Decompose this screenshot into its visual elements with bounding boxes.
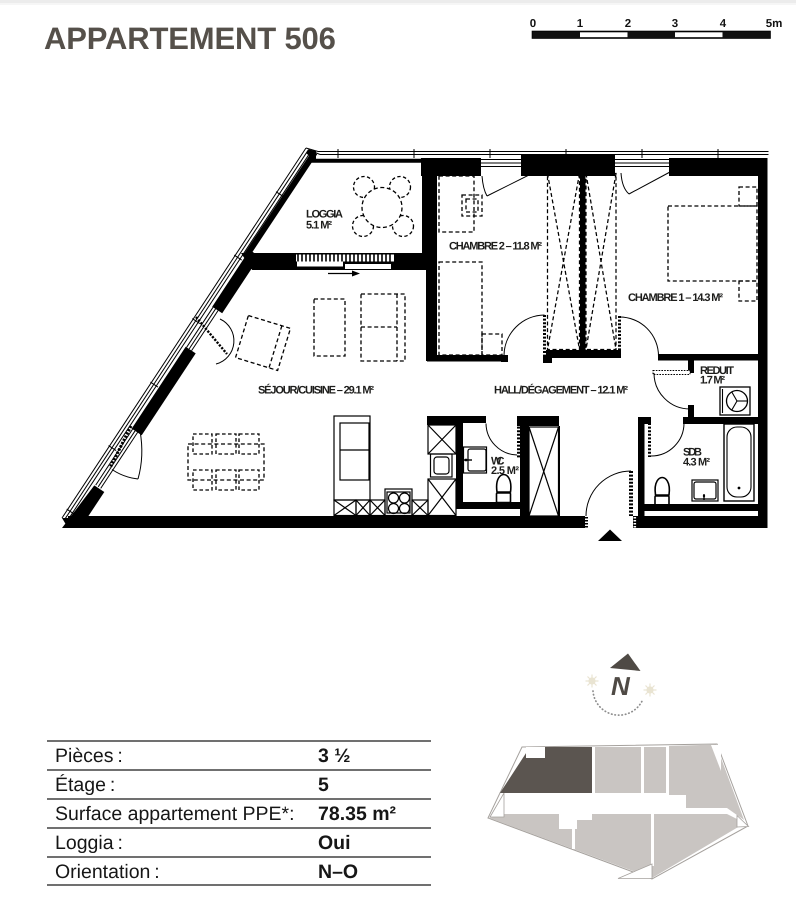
- svg-text:N: N: [611, 671, 631, 701]
- svg-text:4.3 M²: 4.3 M²: [683, 457, 710, 469]
- svg-text:78.35 m²: 78.35 m²: [318, 803, 397, 825]
- svg-text:APPARTEMENT 506: APPARTEMENT 506: [44, 21, 336, 56]
- svg-text:3: 3: [672, 18, 678, 30]
- svg-text:CHAMBRE 2 – 11.8 M²: CHAMBRE 2 – 11.8 M²: [449, 241, 542, 253]
- svg-text:4: 4: [720, 18, 727, 30]
- svg-text:Orientation :: Orientation :: [55, 861, 160, 883]
- svg-text:1.7 M²: 1.7 M²: [700, 375, 725, 387]
- svg-text:5m: 5m: [766, 18, 783, 30]
- svg-text:Pièces :: Pièces :: [55, 745, 123, 767]
- svg-text:5.1 M²: 5.1 M²: [306, 220, 332, 232]
- svg-text:2: 2: [625, 18, 631, 30]
- svg-text:SÉJOUR/CUISINE – 29.1 M²: SÉJOUR/CUISINE – 29.1 M²: [258, 384, 374, 397]
- svg-text:0: 0: [530, 18, 536, 30]
- svg-text:N–O: N–O: [318, 861, 358, 883]
- svg-text:3 ½: 3 ½: [318, 745, 351, 767]
- svg-text:Loggia :: Loggia :: [55, 832, 123, 854]
- svg-text:Oui: Oui: [318, 832, 351, 854]
- svg-text:1: 1: [577, 18, 584, 30]
- svg-text:Surface appartement PPE*:: Surface appartement PPE*:: [55, 803, 295, 825]
- svg-text:5: 5: [318, 774, 329, 796]
- svg-text:CHAMBRE 1 – 14.3 M²: CHAMBRE 1 – 14.3 M²: [628, 292, 723, 304]
- svg-text:Étage :: Étage :: [55, 774, 115, 796]
- svg-text:HALL/DÉGAGEMENT – 12.1 M²: HALL/DÉGAGEMENT – 12.1 M²: [494, 384, 628, 397]
